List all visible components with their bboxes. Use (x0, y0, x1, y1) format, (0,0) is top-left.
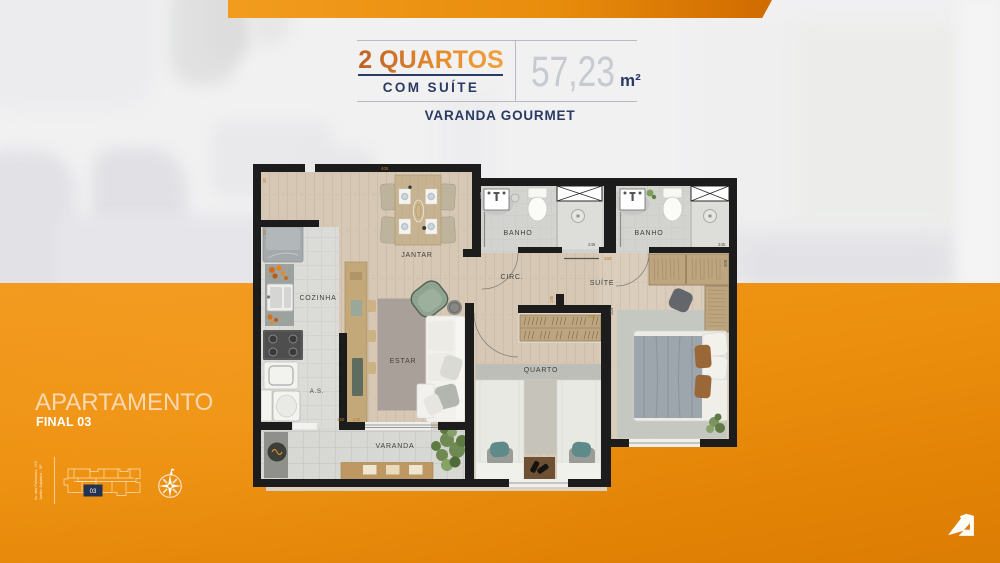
svg-text:120: 120 (615, 191, 620, 199)
svg-text:150: 150 (337, 417, 345, 422)
svg-text:A.S.: A.S. (310, 389, 325, 395)
svg-text:332: 332 (604, 256, 612, 261)
svg-text:COZINHA: COZINHA (299, 295, 336, 302)
svg-text:JANTAR: JANTAR (401, 252, 433, 259)
svg-text:QUARTO: QUARTO (524, 367, 559, 374)
svg-text:190: 190 (549, 295, 554, 303)
svg-text:SUÍTE: SUÍTE (590, 278, 615, 287)
svg-text:245: 245 (718, 242, 726, 247)
svg-text:405: 405 (381, 166, 389, 171)
svg-text:BANHO: BANHO (504, 230, 533, 237)
svg-text:240: 240 (353, 417, 361, 422)
svg-text:03: 03 (90, 489, 97, 495)
svg-text:36: 36 (262, 230, 267, 235)
svg-text:205: 205 (609, 307, 614, 315)
svg-text:CIRC.: CIRC. (500, 274, 523, 281)
svg-text:30: 30 (262, 178, 267, 183)
svg-text:308: 308 (723, 259, 728, 267)
svg-text:248: 248 (588, 314, 596, 319)
svg-text:245: 245 (588, 242, 596, 247)
svg-text:120: 120 (479, 191, 484, 199)
svg-text:ESTAR: ESTAR (390, 358, 417, 365)
svg-text:VARANDA: VARANDA (376, 443, 415, 450)
svg-text:BANHO: BANHO (635, 230, 664, 237)
